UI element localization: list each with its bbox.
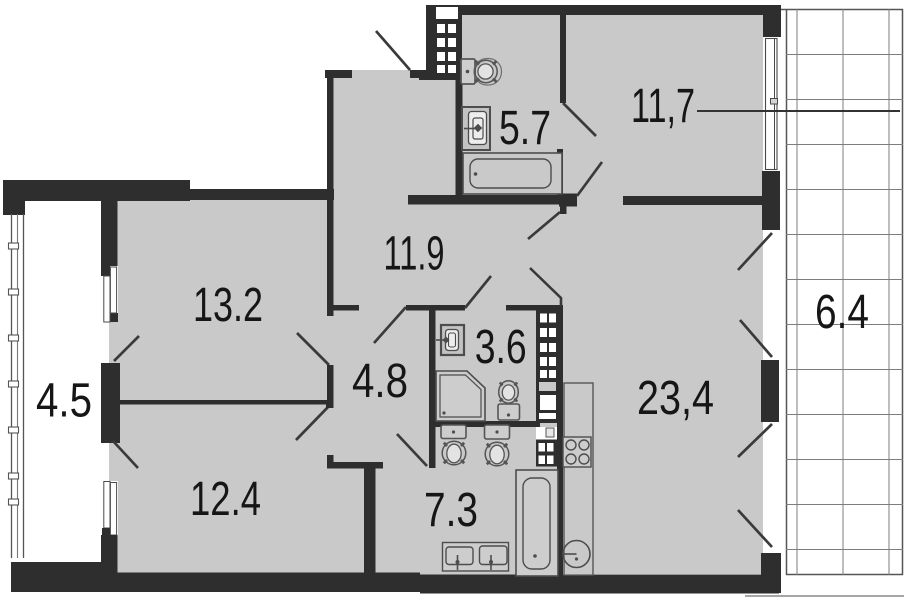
svg-text:12.4: 12.4 (190, 473, 261, 526)
svg-text:7.3: 7.3 (424, 484, 478, 537)
svg-text:4.5: 4.5 (36, 375, 92, 428)
svg-text:11.9: 11.9 (384, 228, 445, 281)
svg-text:3.6: 3.6 (475, 321, 527, 374)
svg-text:13.2: 13.2 (193, 279, 263, 332)
svg-text:6.4: 6.4 (815, 286, 869, 339)
svg-text:23,4: 23,4 (637, 372, 714, 425)
svg-text:11,7: 11,7 (631, 80, 695, 133)
svg-text:4.8: 4.8 (352, 355, 408, 408)
svg-text:5.7: 5.7 (499, 102, 551, 155)
